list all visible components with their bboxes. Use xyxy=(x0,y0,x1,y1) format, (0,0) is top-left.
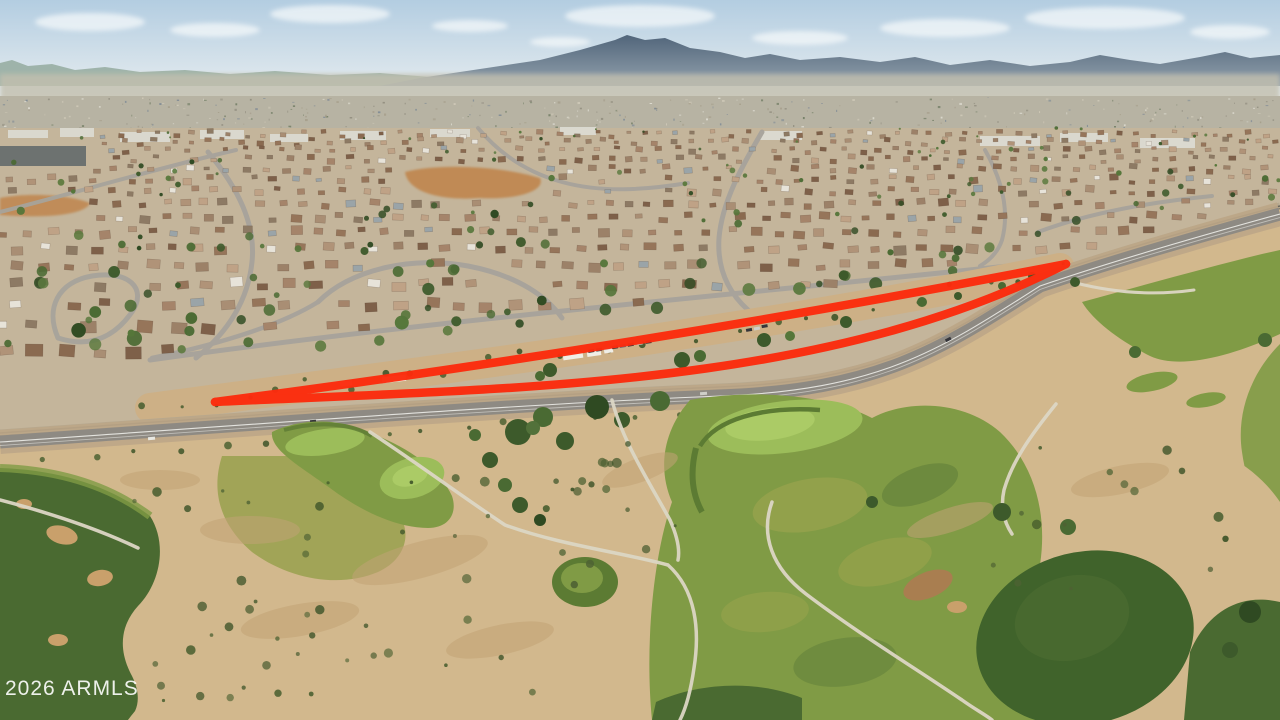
aerial-photo: 2026 ARMLS xyxy=(0,0,1280,720)
aerial-photo-canvas: 2026 ARMLS xyxy=(0,0,1280,720)
distant-city-band xyxy=(0,96,1280,130)
watermark-text: 2026 ARMLS xyxy=(5,677,139,700)
